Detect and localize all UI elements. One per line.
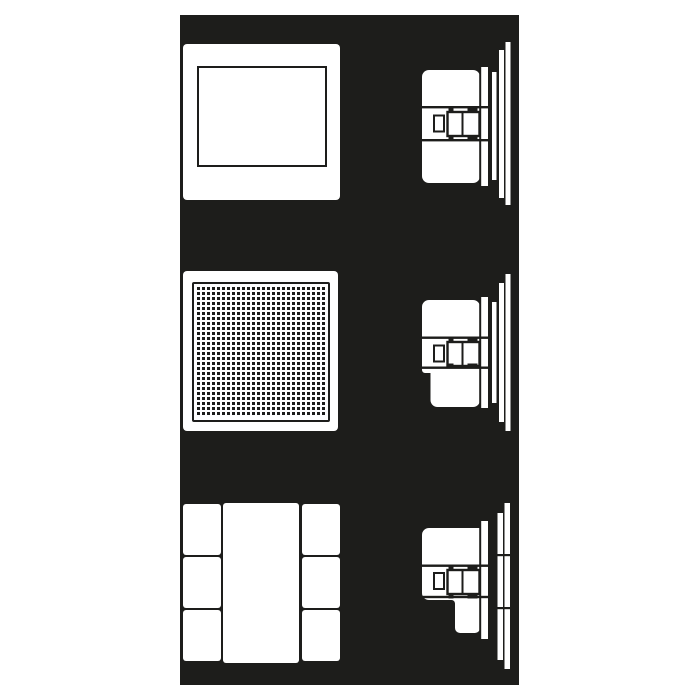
wall-plate-outer — [505, 503, 511, 669]
row1-display-window — [197, 66, 327, 167]
claw-band-bottom-line — [422, 139, 488, 141]
speaker-grille-dots — [197, 287, 325, 417]
claw-band-top-line — [422, 565, 488, 567]
plate-segment-divider — [498, 607, 511, 609]
row2-side-view — [415, 265, 520, 440]
claw-band-top-line — [422, 337, 488, 339]
module-cell — [302, 504, 340, 555]
claw-tooth — [449, 566, 454, 571]
fixing-screw — [434, 116, 444, 132]
claw-tooth — [468, 594, 478, 599]
module-cell — [183, 557, 221, 608]
claw-tooth — [449, 108, 454, 113]
claw-tooth — [468, 566, 478, 571]
claw-tooth — [449, 338, 454, 343]
row2-front-view-frame — [183, 271, 338, 431]
wall-plate-inner — [499, 283, 504, 422]
wall-plate-inner — [498, 513, 504, 660]
row3-side-view — [415, 495, 520, 675]
claw-tooth — [468, 338, 478, 343]
module-cell — [302, 610, 340, 661]
module-cell — [302, 557, 340, 608]
fixing-screw — [434, 346, 444, 362]
module-cell — [183, 504, 221, 555]
claw-tooth — [468, 364, 478, 369]
wall-plate-outer — [506, 42, 511, 205]
claw-tooth — [449, 364, 454, 369]
claw-tooth — [468, 108, 478, 113]
fixing-screw — [434, 573, 444, 589]
product-line-art-sheet — [0, 0, 700, 700]
claw-tooth — [449, 136, 454, 141]
claw-band-bottom-line — [422, 596, 488, 598]
row1-front-view-frame — [183, 44, 340, 200]
module-cell — [183, 610, 221, 661]
wall-plate-outer — [506, 274, 511, 431]
claw-band-top-line — [422, 106, 488, 108]
claw-tooth — [449, 594, 454, 599]
wall-plate-inner — [499, 50, 504, 198]
row1-side-view — [415, 35, 520, 210]
plate-segment-divider — [498, 554, 511, 556]
speaker-grille-frame — [192, 282, 330, 422]
module-cell-center — [223, 503, 299, 663]
wall-plate-thin — [492, 302, 497, 403]
wall-plate-thin — [492, 72, 497, 180]
claw-tooth — [468, 136, 478, 141]
